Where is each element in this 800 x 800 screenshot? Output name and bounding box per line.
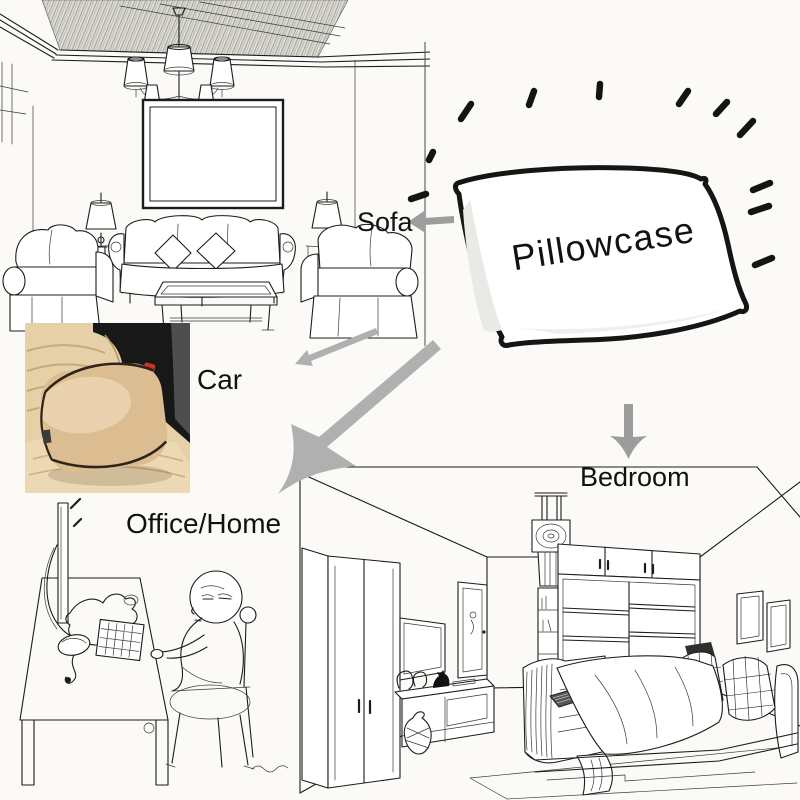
mouse (56, 632, 91, 683)
car-pillow (35, 358, 171, 476)
wall-frames (737, 591, 790, 652)
tv-stand (395, 670, 494, 754)
armchair-right (301, 224, 418, 338)
ceiling (0, 0, 430, 67)
wardrobe (302, 548, 400, 788)
living-room-sketch (0, 0, 430, 348)
person (151, 571, 243, 691)
monitor (44, 503, 77, 638)
pillowcase-uses-infographic: Pillowcase Sofa Car Office/Home Bedroom (0, 0, 800, 800)
armchair-left (3, 225, 113, 331)
door (458, 582, 487, 678)
window-left (0, 62, 28, 144)
pillowcase-label: Pillowcase (495, 209, 713, 278)
arrow-to-bedroom (610, 404, 647, 459)
bedroom-sketch (295, 460, 800, 800)
keyboard (96, 619, 144, 660)
sofa-label: Sofa (357, 209, 413, 236)
car-seat-photo (25, 323, 190, 493)
office-home-sketch (8, 495, 293, 795)
office-home-label: Office/Home (126, 510, 281, 538)
bedroom-label: Bedroom (580, 464, 690, 491)
shine-marks (71, 499, 81, 526)
desk (20, 578, 168, 785)
pillow-tag (42, 430, 52, 444)
bed (523, 642, 798, 795)
car-label: Car (197, 366, 242, 394)
picture-frame (143, 100, 283, 208)
chair (166, 607, 288, 772)
